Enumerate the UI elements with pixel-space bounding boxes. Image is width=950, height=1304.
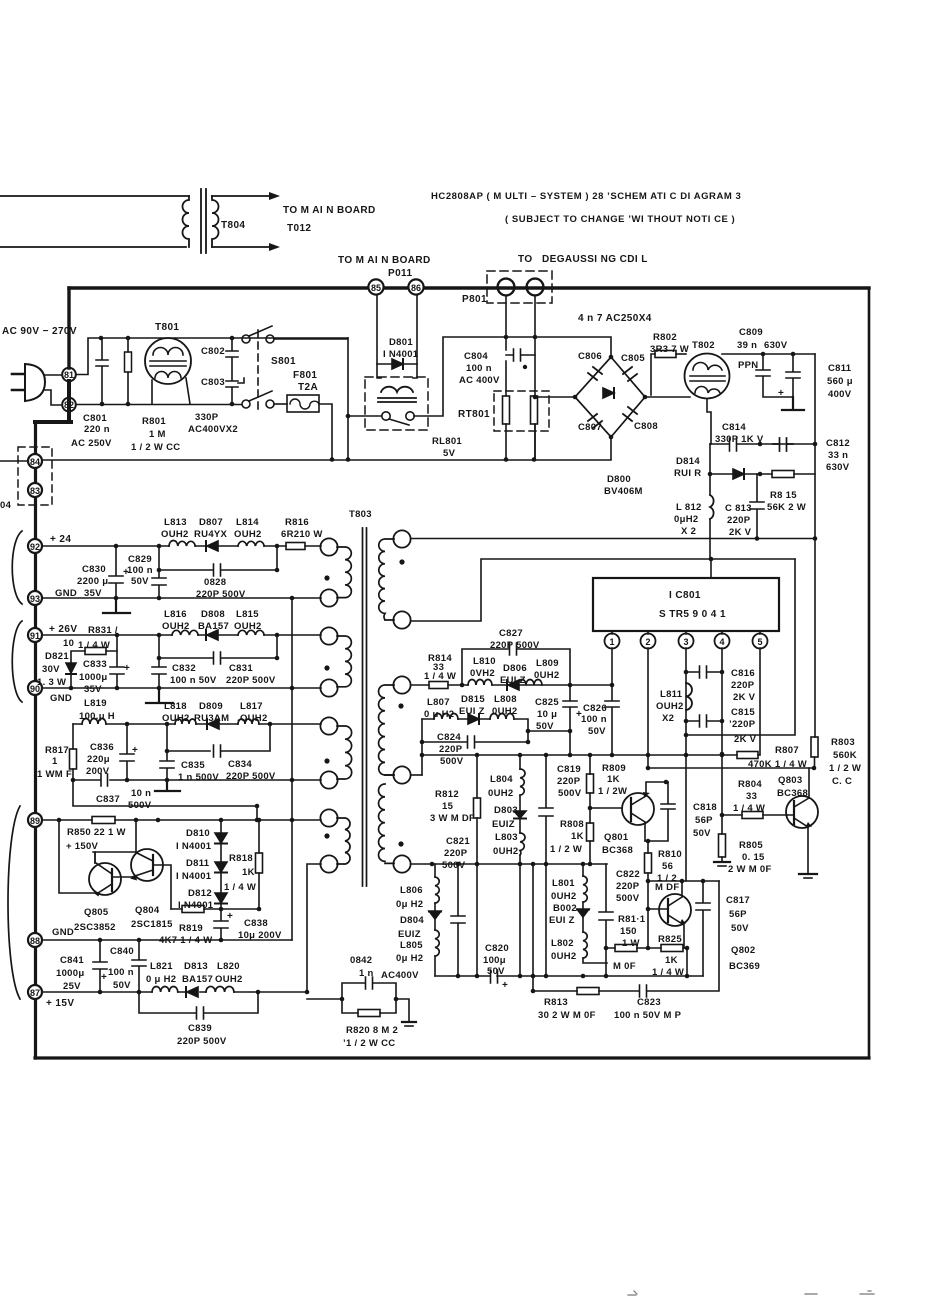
svg-text:X 2: X 2 bbox=[681, 526, 696, 537]
svg-text:M DF: M DF bbox=[655, 882, 679, 893]
svg-text:C821: C821 bbox=[446, 836, 470, 847]
svg-text:1: 1 bbox=[52, 756, 58, 767]
svg-text:2SC1815: 2SC1815 bbox=[131, 919, 173, 930]
svg-text:630V: 630V bbox=[826, 462, 850, 473]
svg-text:Q804: Q804 bbox=[135, 905, 160, 916]
svg-text:0 μ H2: 0 μ H2 bbox=[424, 709, 454, 720]
svg-text:EUI Z: EUI Z bbox=[500, 675, 526, 686]
svg-text:RT801: RT801 bbox=[458, 409, 490, 420]
svg-text:87: 87 bbox=[30, 988, 40, 998]
svg-text:2SC3852: 2SC3852 bbox=[74, 922, 116, 933]
svg-text:C824: C824 bbox=[437, 732, 461, 743]
svg-text:04: 04 bbox=[0, 500, 12, 511]
svg-text:10 μ: 10 μ bbox=[537, 709, 557, 720]
svg-text:D810: D810 bbox=[186, 828, 210, 839]
svg-text:+ 150V: + 150V bbox=[66, 841, 99, 852]
svg-text:L 812: L 812 bbox=[676, 502, 702, 513]
svg-text:R831 /: R831 / bbox=[88, 625, 118, 636]
svg-text:1 n: 1 n bbox=[359, 968, 374, 979]
svg-text:+ 24: + 24 bbox=[50, 534, 71, 545]
svg-text:AC400VX2: AC400VX2 bbox=[188, 424, 238, 435]
svg-text:+: + bbox=[124, 663, 130, 674]
svg-text:100 n: 100 n bbox=[127, 565, 153, 576]
svg-text:PPN: PPN bbox=[738, 360, 758, 371]
svg-text:5V: 5V bbox=[443, 448, 456, 459]
svg-text:0μ H2: 0μ H2 bbox=[396, 953, 423, 964]
svg-text:OUH2: OUH2 bbox=[234, 529, 262, 540]
svg-text:P801: P801 bbox=[462, 294, 487, 305]
svg-text:L810: L810 bbox=[473, 656, 496, 667]
svg-text:81: 81 bbox=[64, 370, 74, 380]
svg-text:1K: 1K bbox=[571, 831, 584, 842]
svg-text:50V: 50V bbox=[693, 828, 711, 839]
svg-text:OUH2: OUH2 bbox=[161, 529, 189, 540]
svg-text:R820 8 M 2: R820 8 M 2 bbox=[346, 1025, 398, 1036]
svg-text:56K 2 W: 56K 2 W bbox=[767, 502, 806, 513]
svg-text:C830: C830 bbox=[82, 564, 106, 575]
svg-text:S TR5 9 0 4 1: S TR5 9 0 4 1 bbox=[659, 609, 726, 620]
svg-text:0μ H2: 0μ H2 bbox=[396, 899, 423, 910]
svg-text:OUH2: OUH2 bbox=[234, 621, 262, 632]
svg-text:C838: C838 bbox=[244, 918, 268, 929]
svg-text:C804: C804 bbox=[464, 351, 488, 362]
svg-text:L805: L805 bbox=[400, 940, 423, 951]
svg-text:C836: C836 bbox=[90, 742, 114, 753]
svg-text:1: 1 bbox=[609, 637, 614, 647]
svg-text:50V: 50V bbox=[536, 721, 554, 732]
svg-text:C802: C802 bbox=[201, 346, 225, 357]
svg-text:0842: 0842 bbox=[350, 955, 372, 966]
svg-text:C809: C809 bbox=[739, 327, 763, 338]
svg-text:35V: 35V bbox=[84, 684, 102, 695]
svg-text:C835: C835 bbox=[181, 760, 205, 771]
svg-text:1K: 1K bbox=[665, 955, 678, 966]
svg-text:L818: L818 bbox=[164, 701, 187, 712]
svg-text:39 n: 39 n bbox=[737, 340, 757, 351]
svg-text:C837: C837 bbox=[96, 794, 120, 805]
svg-text:C826: C826 bbox=[583, 703, 607, 714]
svg-text:2K V: 2K V bbox=[733, 692, 756, 703]
svg-text:OUH2: OUH2 bbox=[162, 621, 190, 632]
svg-text:0UH2: 0UH2 bbox=[488, 788, 514, 799]
svg-text:AC 250V: AC 250V bbox=[71, 438, 112, 449]
svg-text:L802: L802 bbox=[551, 938, 574, 949]
svg-text:C 813: C 813 bbox=[725, 503, 752, 514]
svg-text:220P: 220P bbox=[439, 744, 463, 755]
svg-text:R8 15: R8 15 bbox=[770, 490, 797, 501]
svg-text:50V: 50V bbox=[731, 923, 749, 934]
svg-text:560K: 560K bbox=[833, 750, 857, 761]
svg-text:220P: 220P bbox=[731, 680, 755, 691]
svg-text:1. 3 W: 1. 3 W bbox=[37, 677, 66, 688]
svg-text:100μ: 100μ bbox=[483, 955, 506, 966]
svg-text:L816: L816 bbox=[164, 609, 187, 620]
svg-text:50V: 50V bbox=[113, 980, 131, 991]
svg-text:100 n 50V M P: 100 n 50V M P bbox=[614, 1010, 682, 1021]
svg-text:220P: 220P bbox=[616, 881, 640, 892]
svg-text:C808: C808 bbox=[634, 421, 658, 432]
svg-text:1 / 2 W: 1 / 2 W bbox=[829, 763, 861, 774]
svg-text:Q805: Q805 bbox=[84, 907, 109, 918]
svg-text:56P: 56P bbox=[729, 909, 747, 920]
svg-text:D812: D812 bbox=[188, 888, 212, 899]
svg-text:C823: C823 bbox=[637, 997, 661, 1008]
svg-text:L804: L804 bbox=[490, 774, 513, 785]
svg-text:1 / 4 W: 1 / 4 W bbox=[78, 640, 110, 651]
svg-text:R803: R803 bbox=[831, 737, 855, 748]
svg-text:OUH2: OUH2 bbox=[215, 974, 243, 985]
svg-text:T804: T804 bbox=[221, 220, 245, 231]
svg-text:0. 15: 0. 15 bbox=[742, 852, 765, 863]
svg-text:L814: L814 bbox=[236, 517, 259, 528]
svg-text:L809: L809 bbox=[536, 658, 559, 669]
svg-text:1 WM F: 1 WM F bbox=[37, 769, 72, 780]
svg-text:50V: 50V bbox=[131, 576, 149, 587]
svg-text:TO M AI N BOARD: TO M AI N BOARD bbox=[338, 255, 431, 266]
svg-text:100 n: 100 n bbox=[581, 714, 607, 725]
svg-text:83: 83 bbox=[30, 486, 40, 496]
svg-text:T802: T802 bbox=[692, 340, 715, 351]
svg-text:0UH2: 0UH2 bbox=[551, 891, 577, 902]
svg-text:R807: R807 bbox=[775, 745, 799, 756]
svg-text:Q801: Q801 bbox=[604, 832, 629, 843]
svg-text:15: 15 bbox=[442, 801, 454, 812]
svg-text:D808: D808 bbox=[201, 609, 225, 620]
svg-text:’1 / 2 W CC: ’1 / 2 W CC bbox=[343, 1038, 395, 1049]
svg-text:56P: 56P bbox=[695, 815, 713, 826]
svg-text:C822: C822 bbox=[616, 869, 640, 880]
svg-text:R805: R805 bbox=[739, 840, 763, 851]
svg-text:4 n 7 AC250X4: 4 n 7 AC250X4 bbox=[578, 313, 652, 324]
svg-text:D800: D800 bbox=[607, 474, 631, 485]
svg-text:C834: C834 bbox=[228, 759, 252, 770]
svg-text:D814: D814 bbox=[676, 456, 700, 467]
svg-text:OUH2: OUH2 bbox=[656, 701, 684, 712]
svg-text:EUI Z: EUI Z bbox=[459, 706, 485, 717]
svg-text:500V: 500V bbox=[616, 893, 640, 904]
svg-text:1K: 1K bbox=[242, 867, 255, 878]
svg-text:C832: C832 bbox=[172, 663, 196, 674]
svg-text:1 / 2 W CC: 1 / 2 W CC bbox=[131, 442, 180, 453]
svg-text:BV406M: BV406M bbox=[604, 486, 643, 497]
svg-text:BA157: BA157 bbox=[182, 974, 213, 985]
svg-text:R804: R804 bbox=[738, 779, 762, 790]
svg-text:220P: 220P bbox=[727, 515, 751, 526]
svg-text:TO M AI N BOARD: TO M AI N BOARD bbox=[283, 205, 376, 216]
svg-text:100 n: 100 n bbox=[466, 363, 492, 374]
svg-text:30V: 30V bbox=[42, 664, 60, 675]
svg-text:400V: 400V bbox=[828, 389, 852, 400]
svg-text:D811: D811 bbox=[186, 858, 210, 869]
svg-text:BC368: BC368 bbox=[602, 845, 633, 856]
svg-text:RU3AM: RU3AM bbox=[194, 713, 229, 724]
svg-text:+: + bbox=[227, 911, 233, 922]
svg-text:I N4001: I N4001 bbox=[176, 841, 212, 852]
svg-text:1 / 4 W: 1 / 4 W bbox=[652, 967, 684, 978]
svg-text:0VH2: 0VH2 bbox=[470, 668, 495, 679]
svg-text:1 / 4 W: 1 / 4 W bbox=[224, 882, 256, 893]
svg-text:D801: D801 bbox=[389, 337, 413, 348]
svg-text:330P: 330P bbox=[195, 412, 219, 423]
svg-text:4: 4 bbox=[719, 637, 724, 647]
svg-text:500V: 500V bbox=[440, 756, 464, 767]
svg-text:P011: P011 bbox=[388, 268, 412, 279]
svg-text:6R210 W: 6R210 W bbox=[281, 529, 323, 540]
svg-text:T2A: T2A bbox=[298, 382, 318, 393]
svg-text:3: 3 bbox=[683, 637, 688, 647]
svg-text:L801: L801 bbox=[552, 878, 575, 889]
svg-text:+ 15V: + 15V bbox=[46, 998, 74, 1009]
svg-text:1 / 4 W: 1 / 4 W bbox=[733, 803, 765, 814]
svg-text:’220P: ’220P bbox=[729, 719, 756, 730]
svg-text:220P: 220P bbox=[444, 848, 468, 859]
svg-text:T012: T012 bbox=[287, 223, 311, 234]
svg-text:R810: R810 bbox=[658, 849, 682, 860]
svg-text:10 n: 10 n bbox=[131, 788, 151, 799]
svg-text:C803: C803 bbox=[201, 377, 225, 388]
svg-text:C. C: C. C bbox=[832, 776, 852, 787]
svg-text:84: 84 bbox=[30, 457, 40, 467]
svg-text:100 n: 100 n bbox=[108, 967, 134, 978]
svg-text:330P 1K V: 330P 1K V bbox=[715, 434, 764, 445]
svg-text:1 / 4 W: 1 / 4 W bbox=[424, 671, 456, 682]
svg-text:50V: 50V bbox=[588, 726, 606, 737]
svg-text:1 M: 1 M bbox=[149, 429, 166, 440]
svg-text:EUIZ: EUIZ bbox=[492, 819, 515, 830]
svg-text:BC369: BC369 bbox=[729, 961, 760, 972]
svg-text:AC 90V − 270V: AC 90V − 270V bbox=[2, 326, 77, 337]
svg-text:R802: R802 bbox=[653, 332, 677, 343]
svg-text:L806: L806 bbox=[400, 885, 423, 896]
svg-text:220P 500V: 220P 500V bbox=[226, 675, 276, 686]
svg-text:BC368: BC368 bbox=[777, 788, 808, 799]
svg-text:AC 400V: AC 400V bbox=[459, 375, 500, 386]
svg-text:L817: L817 bbox=[240, 701, 263, 712]
svg-text:BA157: BA157 bbox=[198, 621, 229, 632]
svg-text:L807: L807 bbox=[427, 697, 450, 708]
svg-text:I C801: I C801 bbox=[669, 590, 701, 601]
svg-text:+: + bbox=[778, 388, 784, 399]
svg-text:220P 500V: 220P 500V bbox=[177, 1036, 227, 1047]
svg-text:1 / 2W: 1 / 2W bbox=[598, 786, 627, 797]
svg-text:220P: 220P bbox=[557, 776, 581, 787]
svg-text:86: 86 bbox=[411, 283, 421, 293]
svg-text:30 2 W M 0F: 30 2 W M 0F bbox=[538, 1010, 596, 1021]
svg-text:1000μ: 1000μ bbox=[79, 672, 107, 683]
svg-text:HC2808AP ( M ULTI – SYSTEM ): HC2808AP ( M ULTI – SYSTEM ) 28 ’SCHEM A… bbox=[431, 191, 741, 202]
svg-text:S801: S801 bbox=[271, 356, 296, 367]
svg-text:L813: L813 bbox=[164, 517, 187, 528]
svg-text:B002: B002 bbox=[553, 903, 577, 914]
svg-text:.OUH2: .OUH2 bbox=[237, 713, 268, 724]
svg-text:500V: 500V bbox=[442, 860, 466, 871]
svg-text:C839: C839 bbox=[188, 1023, 212, 1034]
svg-text:85: 85 bbox=[371, 283, 381, 293]
svg-text:560 μ: 560 μ bbox=[827, 376, 853, 387]
svg-text:2 W M 0F: 2 W M 0F bbox=[728, 864, 772, 875]
svg-text:C831: C831 bbox=[229, 663, 253, 674]
svg-text:GND: GND bbox=[52, 927, 74, 938]
svg-text:D807: D807 bbox=[199, 517, 223, 528]
svg-text:RU4YX: RU4YX bbox=[194, 529, 228, 540]
svg-text:R818: R818 bbox=[229, 853, 253, 864]
svg-text:+: + bbox=[123, 567, 129, 578]
svg-text:AC400V: AC400V bbox=[381, 970, 419, 981]
svg-text:C814: C814 bbox=[722, 422, 746, 433]
svg-text:2: 2 bbox=[645, 637, 650, 647]
svg-text:C807: C807 bbox=[578, 422, 602, 433]
svg-text:3R3 7 W: 3R3 7 W bbox=[650, 344, 689, 355]
svg-text:2K V: 2K V bbox=[729, 527, 752, 538]
svg-text:C841: C841 bbox=[60, 955, 84, 966]
svg-text:C815: C815 bbox=[731, 707, 755, 718]
svg-text:5: 5 bbox=[757, 637, 762, 647]
svg-text:2K V: 2K V bbox=[734, 734, 757, 745]
svg-text:R817: R817 bbox=[45, 745, 69, 756]
svg-text:X2: X2 bbox=[662, 713, 674, 724]
svg-text:56: 56 bbox=[662, 861, 673, 872]
svg-text:R819: R819 bbox=[179, 923, 203, 934]
svg-text:0UH2: 0UH2 bbox=[492, 706, 518, 717]
svg-text:220μ: 220μ bbox=[87, 754, 110, 765]
svg-text:R809: R809 bbox=[602, 763, 626, 774]
svg-text:200V: 200V bbox=[86, 766, 110, 777]
svg-text:C811: C811 bbox=[828, 363, 852, 374]
svg-text:2200 μ: 2200 μ bbox=[77, 576, 108, 587]
svg-text:L808: L808 bbox=[494, 694, 517, 705]
svg-text:88: 88 bbox=[30, 936, 40, 946]
svg-text:Q802: Q802 bbox=[731, 945, 755, 956]
svg-text:R812: R812 bbox=[435, 789, 459, 800]
svg-text:GND: GND bbox=[50, 693, 72, 704]
svg-text:82: 82 bbox=[64, 400, 74, 410]
svg-text:0UH2: 0UH2 bbox=[551, 951, 577, 962]
svg-text:EUIZ: EUIZ bbox=[398, 929, 421, 940]
svg-text:C801: C801 bbox=[83, 413, 107, 424]
svg-text:0UH2: 0UH2 bbox=[534, 670, 560, 681]
svg-text:RL801: RL801 bbox=[432, 436, 462, 447]
svg-text:50V: 50V bbox=[487, 966, 505, 977]
svg-text:D806: D806 bbox=[503, 663, 527, 674]
svg-text:0828: 0828 bbox=[204, 577, 226, 588]
svg-text:C827: C827 bbox=[499, 628, 523, 639]
svg-text:C825: C825 bbox=[535, 697, 559, 708]
svg-text:C817: C817 bbox=[726, 895, 750, 906]
svg-text:150: 150 bbox=[620, 926, 637, 937]
svg-text:100 n 50V: 100 n 50V bbox=[170, 675, 217, 686]
svg-text:+ 26V: + 26V bbox=[49, 624, 77, 635]
svg-text:89: 89 bbox=[30, 816, 40, 826]
svg-text:1 / 2 W: 1 / 2 W bbox=[550, 844, 582, 855]
svg-text:0 μ H2: 0 μ H2 bbox=[146, 974, 176, 985]
svg-text:33 n: 33 n bbox=[828, 450, 848, 461]
svg-text:25V: 25V bbox=[63, 981, 81, 992]
svg-text:D809: D809 bbox=[199, 701, 223, 712]
svg-text:RUI R: RUI R bbox=[674, 468, 701, 479]
svg-text:630V: 630V bbox=[764, 340, 788, 351]
svg-text:D813: D813 bbox=[184, 961, 208, 972]
svg-text:T803: T803 bbox=[349, 509, 372, 520]
svg-text:+: + bbox=[502, 980, 508, 991]
svg-text:R825: R825 bbox=[658, 934, 682, 945]
svg-text:L815: L815 bbox=[236, 609, 259, 620]
svg-text:C819: C819 bbox=[557, 764, 581, 775]
svg-text:L819: L819 bbox=[84, 698, 107, 709]
svg-text:( SUBJECT TO CHANGE ’WI THOUT: ( SUBJECT TO CHANGE ’WI THOUT NOTI CE ) bbox=[505, 214, 735, 225]
svg-text:D804: D804 bbox=[400, 915, 424, 926]
svg-text:I N4001: I N4001 bbox=[176, 871, 212, 882]
svg-text:EUI Z: EUI Z bbox=[549, 915, 575, 926]
svg-text:R81·1: R81·1 bbox=[618, 914, 646, 925]
svg-text:M 0F: M 0F bbox=[613, 961, 636, 972]
svg-text:91: 91 bbox=[30, 631, 40, 641]
svg-text:500V: 500V bbox=[558, 788, 582, 799]
svg-text:R808: R808 bbox=[560, 819, 584, 830]
svg-text:0μH2: 0μH2 bbox=[674, 514, 698, 525]
svg-text:R813: R813 bbox=[544, 997, 568, 1008]
svg-text:L820: L820 bbox=[217, 961, 240, 972]
svg-text:10: 10 bbox=[63, 638, 74, 649]
svg-text:1 n 500V: 1 n 500V bbox=[178, 772, 219, 783]
svg-text:C805: C805 bbox=[621, 353, 645, 364]
svg-text:F801: F801 bbox=[293, 370, 317, 381]
svg-text:+: + bbox=[132, 745, 138, 756]
svg-text:I N4001: I N4001 bbox=[383, 349, 419, 360]
svg-text:L803: L803 bbox=[495, 832, 518, 843]
svg-text:93: 93 bbox=[30, 594, 40, 604]
svg-text:L811: L811 bbox=[660, 689, 683, 700]
svg-text:R816: R816 bbox=[285, 517, 309, 528]
svg-text:220P 500V: 220P 500V bbox=[490, 640, 540, 651]
svg-text:R801: R801 bbox=[142, 416, 166, 427]
svg-text:C840: C840 bbox=[110, 946, 134, 957]
svg-text:33: 33 bbox=[746, 791, 757, 802]
svg-text:D803: D803 bbox=[494, 805, 518, 816]
svg-text:T801: T801 bbox=[155, 322, 179, 333]
svg-text:TO DEGAUSSI NG CDI L: TO DEGAUSSI NG CDI L bbox=[518, 254, 648, 265]
svg-text:220 n: 220 n bbox=[84, 424, 110, 435]
svg-text:C816: C816 bbox=[731, 668, 755, 679]
svg-text:R850 22 1 W: R850 22 1 W bbox=[67, 827, 126, 838]
svg-text:0UH2: 0UH2 bbox=[493, 846, 519, 857]
svg-text:92: 92 bbox=[30, 542, 40, 552]
svg-text:+: + bbox=[101, 972, 107, 983]
svg-text:D815: D815 bbox=[461, 694, 485, 705]
svg-text:Q803: Q803 bbox=[778, 775, 802, 786]
svg-text:1K: 1K bbox=[607, 774, 620, 785]
svg-text:3 W M DF: 3 W M DF bbox=[430, 813, 475, 824]
svg-text:C818: C818 bbox=[693, 802, 717, 813]
svg-text:L821: L821 bbox=[150, 961, 173, 972]
svg-text:D821: D821 bbox=[45, 651, 69, 662]
svg-text:1 W: 1 W bbox=[622, 938, 640, 949]
svg-text:C820: C820 bbox=[485, 943, 509, 954]
svg-text:C812: C812 bbox=[826, 438, 850, 449]
svg-text:C806: C806 bbox=[578, 351, 602, 362]
svg-text:C829: C829 bbox=[128, 554, 152, 565]
svg-text:1000μ: 1000μ bbox=[56, 968, 84, 979]
svg-text:C833: C833 bbox=[83, 659, 107, 670]
